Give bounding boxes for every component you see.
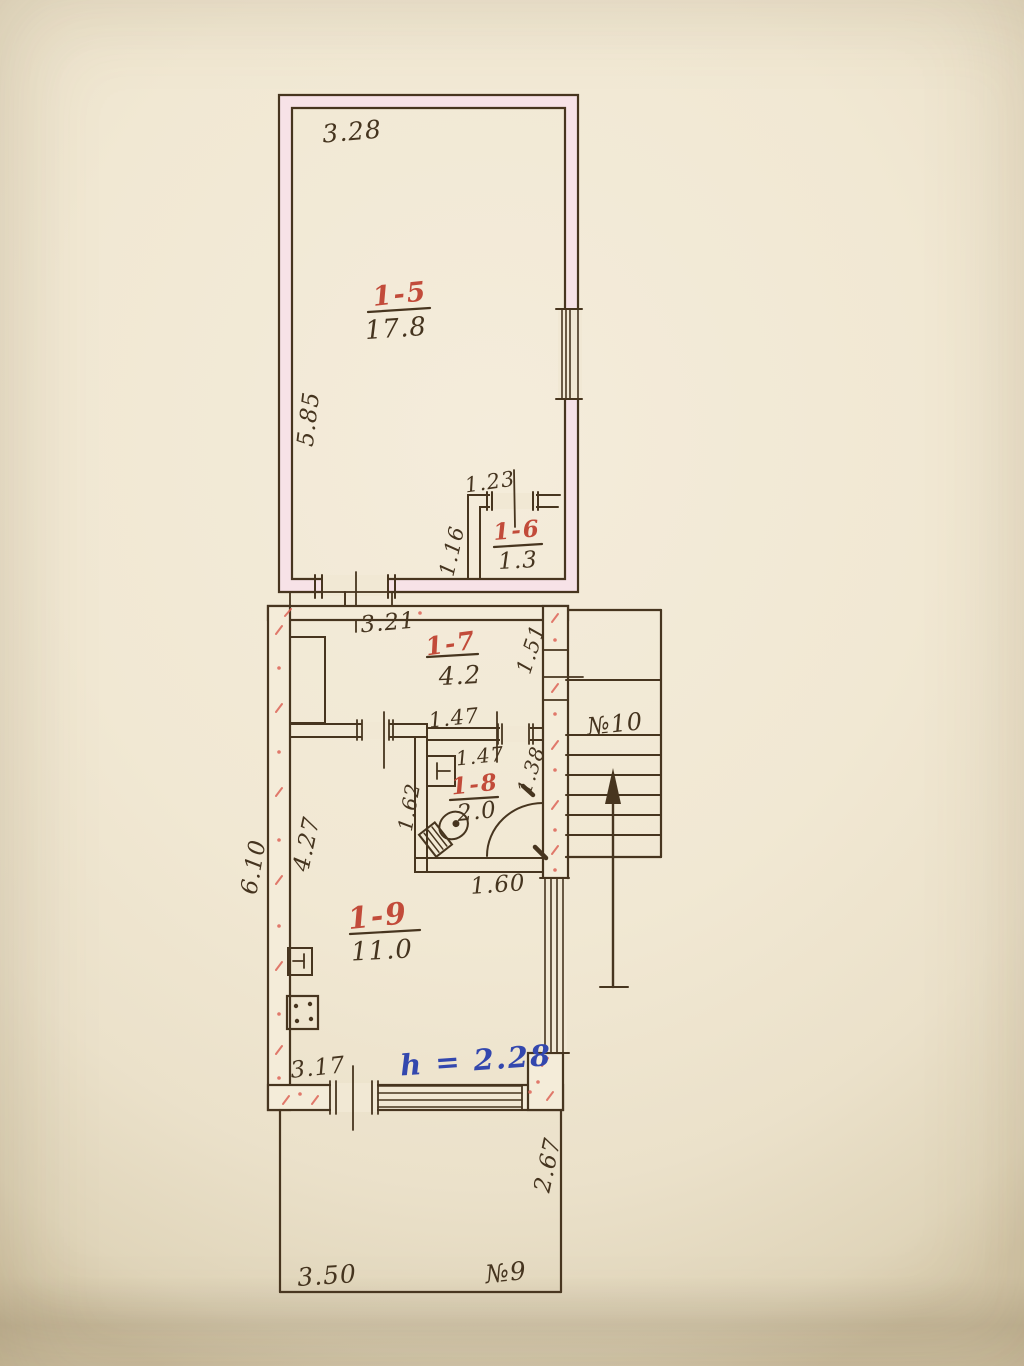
window-room-1-9	[540, 878, 569, 1053]
floor-plan-drawing	[0, 0, 1024, 1366]
stairwell	[566, 610, 661, 987]
chimney-block	[290, 637, 325, 723]
sink-1-9	[288, 948, 312, 975]
dim-yard-bottom: 3.50	[291, 1259, 363, 1293]
dim-room-1-5-width: 3.28	[316, 114, 388, 149]
stair-direction-arrow-icon	[605, 768, 621, 804]
dim-room-1-8-bottom: 1.60	[462, 870, 534, 901]
room-area-1-6: 1.3	[482, 546, 553, 576]
room-area-1-7: 4.2	[424, 659, 495, 692]
window-room-1-5	[556, 308, 582, 400]
door-room-1-5	[315, 575, 395, 598]
scanned-floor-plan: 3.28 5.85 1-5 17.8 1.23 1.16 1-6 1.3 3.2…	[0, 0, 1024, 1366]
room-number-1-9: 1-9	[341, 895, 414, 937]
room-area-1-5: 17.8	[360, 312, 432, 347]
room-area-1-9: 11.0	[346, 934, 417, 968]
stove-icon	[287, 996, 318, 1029]
partition-1-7-1-9	[290, 712, 427, 768]
